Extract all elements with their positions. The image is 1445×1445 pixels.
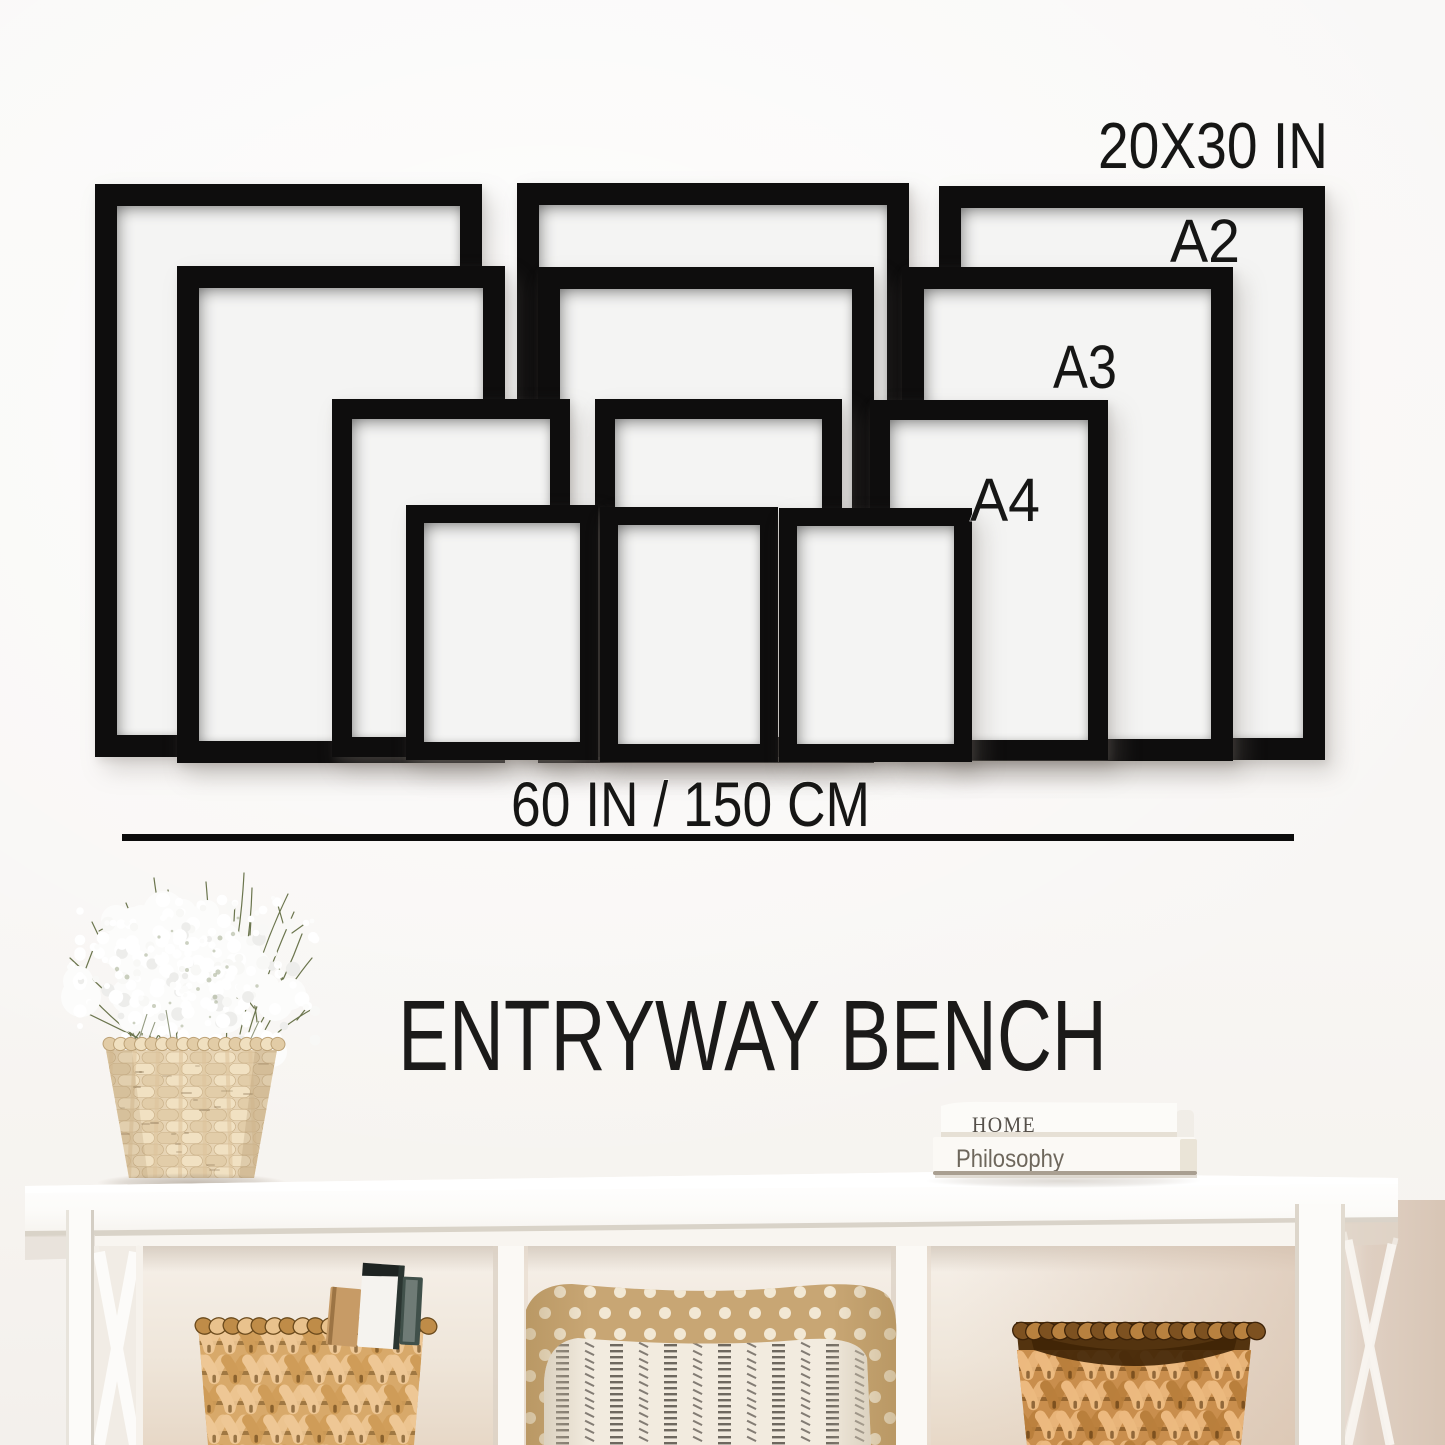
svg-text:HOME: HOME bbox=[972, 1112, 1036, 1137]
svg-text:A2: A2 bbox=[1170, 207, 1240, 275]
svg-text:A4: A4 bbox=[970, 466, 1040, 534]
svg-text:A3: A3 bbox=[1053, 333, 1117, 401]
svg-text:60 IN / 150 CM: 60 IN / 150 CM bbox=[511, 770, 870, 840]
svg-text:Philosophy: Philosophy bbox=[956, 1145, 1064, 1173]
svg-text:20X30 IN: 20X30 IN bbox=[1098, 109, 1328, 182]
